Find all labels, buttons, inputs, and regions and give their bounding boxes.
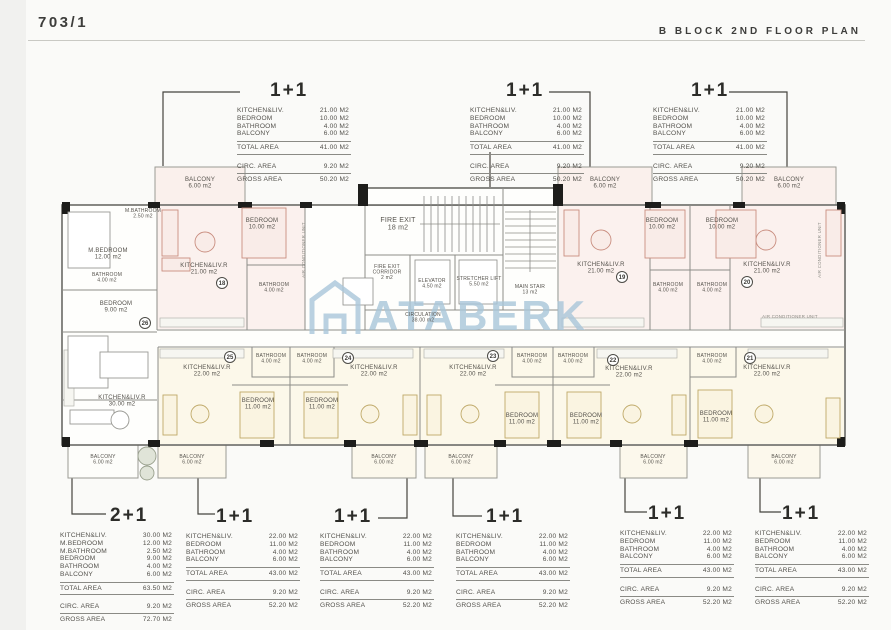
area-row-value: 41.00 M2 — [301, 144, 349, 152]
area-row-value: 6.00 M2 — [518, 556, 568, 564]
area-row: BALCONY6.00 M2 — [653, 130, 793, 138]
area-row-value: 9.00 M2 — [122, 555, 172, 563]
landscape-trees — [138, 447, 156, 480]
area-row: TOTAL AREA43.00 M2 — [755, 567, 869, 575]
total-area-row: TOTAL AREA43.00 M2 — [755, 564, 869, 578]
area-row: BATHROOM4.00 M2 — [456, 549, 596, 557]
area-row: TOTAL AREA43.00 M2 — [620, 567, 734, 575]
area-row: GROSS AREA72.70 M2 — [60, 616, 174, 624]
area-row-value: 52.20 M2 — [250, 602, 298, 610]
ac-unit-note: AIR CONDITIONER UNIT — [817, 222, 822, 278]
area-row-label: BALCONY — [653, 130, 715, 138]
area-row-value: 2.50 M2 — [122, 548, 172, 556]
area-row-value: 41.00 M2 — [534, 144, 582, 152]
area-row-label: TOTAL AREA — [620, 567, 684, 575]
room-label: BALCONY6.00 m2 — [771, 454, 797, 466]
area-row: TOTAL AREA43.00 M2 — [186, 570, 300, 578]
area-row-label: KITCHEN&LIV. — [186, 533, 248, 541]
area-row-value: 6.00 M2 — [382, 556, 432, 564]
gross-area-row: GROSS AREA52.20 M2 — [186, 600, 300, 610]
area-row: BEDROOM11.00 M2 — [456, 541, 596, 549]
area-row-label: KITCHEN&LIV. — [755, 530, 817, 538]
area-row-label: BATHROOM — [237, 123, 299, 131]
area-row-value: 11.00 M2 — [817, 538, 867, 546]
area-row: CIRC. AREA9.20 M2 — [237, 163, 351, 171]
area-row: GROSS AREA52.20 M2 — [186, 602, 300, 610]
area-row-value: 6.00 M2 — [817, 553, 867, 561]
area-row-label: BALCONY — [620, 553, 682, 561]
area-row-label: CIRC. AREA — [320, 589, 384, 597]
area-row-value: 63.50 M2 — [124, 585, 172, 593]
room-label: BALCONY6.00 m2 — [640, 454, 666, 466]
area-row-value: 21.00 M2 — [532, 107, 582, 115]
area-row: BALCONY6.00 M2 — [60, 571, 200, 579]
area-row-label: CIRC. AREA — [60, 603, 124, 611]
room-label: BEDROOM10.00 m2 — [706, 218, 738, 231]
area-row-label: TOTAL AREA — [456, 570, 520, 578]
area-row: KITCHEN&LIV.30.00 M2 — [60, 532, 200, 540]
gross-area-row: GROSS AREA72.70 M2 — [60, 614, 174, 624]
circulation-area-row: CIRC. AREA9.20 M2 — [456, 589, 570, 600]
ac-unit-note: AIR CONDITIONER UNIT — [762, 314, 818, 319]
area-row-label: M.BATHROOM — [60, 548, 122, 556]
area-row-label: KITCHEN&LIV. — [620, 530, 682, 538]
area-row-label: GROSS AREA — [755, 599, 819, 607]
area-row-value: 10.00 M2 — [715, 115, 765, 123]
watermark-text: ATABERK — [368, 292, 588, 339]
area-row-value: 9.20 M2 — [250, 589, 298, 597]
area-row-label: GROSS AREA — [456, 602, 520, 610]
total-area-row: TOTAL AREA43.00 M2 — [186, 567, 300, 581]
area-row: TOTAL AREA43.00 M2 — [456, 570, 570, 578]
room-label: BALCONY6.00 m2 — [90, 454, 116, 466]
room-label: BALCONY6.00 m2 — [185, 177, 215, 190]
area-row-value: 9.20 M2 — [684, 586, 732, 594]
area-row-label: BALCONY — [755, 553, 817, 561]
area-row: KITCHEN&LIV.21.00 M2 — [470, 107, 610, 115]
area-row-label: BEDROOM — [320, 541, 382, 549]
area-row-value: 52.20 M2 — [384, 602, 432, 610]
area-row-value: 22.00 M2 — [518, 533, 568, 541]
unit-summary-bottom-6: 1+1KITCHEN&LIV.22.00 M2BEDROOM11.00 M2BA… — [755, 503, 891, 606]
area-row-value: 9.20 M2 — [520, 589, 568, 597]
gross-area-row: GROSS AREA52.20 M2 — [320, 600, 434, 610]
area-row-value: 4.00 M2 — [299, 123, 349, 131]
area-row: KITCHEN&LIV.22.00 M2 — [456, 533, 596, 541]
area-row: M.BATHROOM2.50 M2 — [60, 548, 200, 556]
area-row-value: 4.00 M2 — [248, 549, 298, 557]
area-row: BEDROOM10.00 M2 — [470, 115, 610, 123]
area-row-label: TOTAL AREA — [470, 144, 534, 152]
area-row-value: 4.00 M2 — [518, 549, 568, 557]
area-row: KITCHEN&LIV.22.00 M2 — [186, 533, 326, 541]
area-row-label: BEDROOM — [456, 541, 518, 549]
room-label: BEDROOM11.00 m2 — [700, 411, 732, 424]
area-row-label: BATHROOM — [755, 546, 817, 554]
area-row: M.BEDROOM12.00 M2 — [60, 540, 200, 548]
area-row: BALCONY6.00 M2 — [320, 556, 460, 564]
room-label: BEDROOM11.00 m2 — [242, 398, 274, 411]
area-row: KITCHEN&LIV.21.00 M2 — [237, 107, 377, 115]
area-row-value: 52.20 M2 — [684, 599, 732, 607]
area-row-value: 21.00 M2 — [299, 107, 349, 115]
area-row-label: GROSS AREA — [186, 602, 250, 610]
area-row: BEDROOM11.00 M2 — [620, 538, 760, 546]
area-row-label: BEDROOM — [755, 538, 817, 546]
area-row: BALCONY6.00 M2 — [237, 130, 377, 138]
area-row-label: CIRC. AREA — [620, 586, 684, 594]
total-area-row: TOTAL AREA43.00 M2 — [456, 567, 570, 581]
area-row-label: BATHROOM — [320, 549, 382, 557]
area-row-label: KITCHEN&LIV. — [320, 533, 382, 541]
area-row-value: 9.20 M2 — [534, 163, 582, 171]
circulation-area-row: CIRC. AREA9.20 M2 — [620, 586, 734, 597]
area-row: GROSS AREA52.20 M2 — [620, 599, 734, 607]
total-area-row: TOTAL AREA41.00 M2 — [237, 141, 351, 155]
area-row: TOTAL AREA41.00 M2 — [237, 144, 351, 152]
area-row: KITCHEN&LIV.22.00 M2 — [320, 533, 460, 541]
area-row: BATHROOM4.00 M2 — [653, 123, 793, 131]
area-row-value: 22.00 M2 — [682, 530, 732, 538]
unit-type-label: 1+1 — [186, 506, 326, 528]
area-row-value: 22.00 M2 — [817, 530, 867, 538]
unit-number: 24 — [345, 356, 352, 362]
area-row: BEDROOM9.00 M2 — [60, 555, 200, 563]
area-row-value: 6.00 M2 — [715, 130, 765, 138]
area-row-value: 52.20 M2 — [520, 602, 568, 610]
unit-type-label: 1+1 — [653, 80, 793, 102]
area-row-value: 12.00 M2 — [122, 540, 172, 548]
unit-type-label: 1+1 — [470, 80, 610, 102]
area-row-value: 9.20 M2 — [819, 586, 867, 594]
circulation-area-row: CIRC. AREA9.20 M2 — [60, 603, 174, 614]
total-area-row: TOTAL AREA41.00 M2 — [470, 141, 584, 155]
circulation-area-row: CIRC. AREA9.20 M2 — [653, 163, 767, 174]
area-row-value: 11.00 M2 — [382, 541, 432, 549]
area-row-label: TOTAL AREA — [60, 585, 124, 593]
area-row-label: BALCONY — [456, 556, 518, 564]
area-row: BEDROOM11.00 M2 — [320, 541, 460, 549]
area-row: KITCHEN&LIV.22.00 M2 — [755, 530, 891, 538]
gross-area-row: GROSS AREA52.20 M2 — [755, 597, 869, 607]
area-row: CIRC. AREA9.20 M2 — [60, 603, 174, 611]
area-row-label: BALCONY — [186, 556, 248, 564]
room-label: BALCONY6.00 m2 — [448, 454, 474, 466]
area-row-value: 9.20 M2 — [124, 603, 172, 611]
area-row-value: 6.00 M2 — [532, 130, 582, 138]
area-row-label: KITCHEN&LIV. — [237, 107, 299, 115]
area-row-value: 52.20 M2 — [819, 599, 867, 607]
area-row: CIRC. AREA9.20 M2 — [320, 589, 434, 597]
circulation-area-row: CIRC. AREA9.20 M2 — [755, 586, 869, 597]
room-label: BALCONY6.00 m2 — [371, 454, 397, 466]
area-row: BATHROOM4.00 M2 — [60, 563, 200, 571]
area-row: TOTAL AREA43.00 M2 — [320, 570, 434, 578]
area-row-label: TOTAL AREA — [653, 144, 717, 152]
area-row-label: BALCONY — [320, 556, 382, 564]
area-row: CIRC. AREA9.20 M2 — [620, 586, 734, 594]
unit-summary-top-2: 1+1KITCHEN&LIV.21.00 M2BEDROOM10.00 M2BA… — [470, 80, 610, 183]
unit-type-label: 1+1 — [755, 503, 891, 525]
area-row: BATHROOM4.00 M2 — [186, 549, 326, 557]
area-row-label: KITCHEN&LIV. — [653, 107, 715, 115]
total-area-row: TOTAL AREA43.00 M2 — [320, 567, 434, 581]
unit-summary-bottom-5: 1+1KITCHEN&LIV.22.00 M2BEDROOM11.00 M2BA… — [620, 503, 760, 606]
unit-summary-bottom-2: 1+1KITCHEN&LIV.22.00 M2BEDROOM11.00 M2BA… — [186, 506, 326, 609]
unit-type-label: 1+1 — [620, 503, 760, 525]
gross-area-row: GROSS AREA50.20 M2 — [653, 174, 767, 184]
total-area-row: TOTAL AREA63.50 M2 — [60, 582, 174, 596]
area-row: CIRC. AREA9.20 M2 — [755, 586, 869, 594]
gross-area-row: GROSS AREA50.20 M2 — [237, 174, 351, 184]
area-row: KITCHEN&LIV.21.00 M2 — [653, 107, 793, 115]
area-row: GROSS AREA52.20 M2 — [456, 602, 570, 610]
area-row-label: GROSS AREA — [237, 176, 301, 184]
area-row-value: 4.00 M2 — [122, 563, 172, 571]
area-row-label: TOTAL AREA — [320, 570, 384, 578]
area-row: BEDROOM11.00 M2 — [186, 541, 326, 549]
area-row-label: KITCHEN&LIV. — [60, 532, 122, 540]
area-row: BATHROOM4.00 M2 — [237, 123, 377, 131]
area-row-value: 6.00 M2 — [299, 130, 349, 138]
area-row-label: GROSS AREA — [620, 599, 684, 607]
unit-number: 26 — [142, 321, 149, 327]
area-row-label: TOTAL AREA — [237, 144, 301, 152]
area-row-value: 50.20 M2 — [717, 176, 765, 184]
area-row-label: CIRC. AREA — [456, 589, 520, 597]
area-row-value: 43.00 M2 — [819, 567, 867, 575]
unit-summary-top-3: 1+1KITCHEN&LIV.21.00 M2BEDROOM10.00 M2BA… — [653, 80, 793, 183]
area-row-label: BATHROOM — [653, 123, 715, 131]
area-row: KITCHEN&LIV.22.00 M2 — [620, 530, 760, 538]
area-row-value: 4.00 M2 — [817, 546, 867, 554]
area-row-label: TOTAL AREA — [186, 570, 250, 578]
gross-area-row: GROSS AREA52.20 M2 — [456, 600, 570, 610]
circulation-area-row: CIRC. AREA9.20 M2 — [237, 163, 351, 174]
area-row: BATHROOM4.00 M2 — [620, 546, 760, 554]
area-row: TOTAL AREA41.00 M2 — [653, 144, 767, 152]
area-row: BATHROOM4.00 M2 — [755, 546, 891, 554]
unit-number: 23 — [490, 354, 497, 360]
area-row-value: 50.20 M2 — [534, 176, 582, 184]
area-row: BALCONY6.00 M2 — [456, 556, 596, 564]
area-row: GROSS AREA50.20 M2 — [653, 176, 767, 184]
area-row-label: BATHROOM — [620, 546, 682, 554]
area-row: BALCONY6.00 M2 — [755, 553, 891, 561]
area-row-value: 10.00 M2 — [532, 115, 582, 123]
area-row-label: BEDROOM — [653, 115, 715, 123]
area-row-label: CIRC. AREA — [755, 586, 819, 594]
total-area-row: TOTAL AREA43.00 M2 — [620, 564, 734, 578]
room-label: BEDROOM11.00 m2 — [570, 413, 602, 426]
area-row-value: 41.00 M2 — [717, 144, 765, 152]
area-row: CIRC. AREA9.20 M2 — [456, 589, 570, 597]
room-label: BEDROOM11.00 m2 — [306, 398, 338, 411]
area-row-label: BEDROOM — [186, 541, 248, 549]
area-row-label: CIRC. AREA — [470, 163, 534, 171]
area-row: GROSS AREA50.20 M2 — [237, 176, 351, 184]
area-row-value: 22.00 M2 — [382, 533, 432, 541]
area-row-label: GROSS AREA — [320, 602, 384, 610]
area-row-value: 9.20 M2 — [301, 163, 349, 171]
area-row-value: 4.00 M2 — [715, 123, 765, 131]
unit-number: 19 — [619, 275, 626, 281]
area-row-value: 4.00 M2 — [532, 123, 582, 131]
area-row: BALCONY6.00 M2 — [186, 556, 326, 564]
unit-type-label: 1+1 — [320, 506, 460, 528]
area-row-label: BEDROOM — [237, 115, 299, 123]
area-row-value: 50.20 M2 — [301, 176, 349, 184]
area-row-label: GROSS AREA — [653, 176, 717, 184]
area-row: BATHROOM4.00 M2 — [320, 549, 460, 557]
total-area-row: TOTAL AREA41.00 M2 — [653, 141, 767, 155]
area-row-value: 4.00 M2 — [382, 549, 432, 557]
area-row-value: 6.00 M2 — [682, 553, 732, 561]
gross-area-row: GROSS AREA52.20 M2 — [620, 597, 734, 607]
area-row-value: 11.00 M2 — [518, 541, 568, 549]
area-row-value: 4.00 M2 — [682, 546, 732, 554]
area-row-label: GROSS AREA — [60, 616, 124, 624]
area-row-label: TOTAL AREA — [755, 567, 819, 575]
unit-type-label: 1+1 — [456, 506, 596, 528]
unit-number: 18 — [219, 281, 226, 287]
area-row-value: 11.00 M2 — [248, 541, 298, 549]
area-row: BEDROOM10.00 M2 — [653, 115, 793, 123]
unit-number: 25 — [227, 355, 234, 361]
area-row-label: BEDROOM — [470, 115, 532, 123]
area-row: TOTAL AREA41.00 M2 — [470, 144, 584, 152]
room-label: BALCONY6.00 m2 — [179, 454, 205, 466]
area-row-label: BATHROOM — [456, 549, 518, 557]
area-row-label: M.BEDROOM — [60, 540, 122, 548]
unit-summary-bottom-1: 2+1KITCHEN&LIV.30.00 M2M.BEDROOM12.00 M2… — [60, 505, 200, 624]
area-row: BEDROOM10.00 M2 — [237, 115, 377, 123]
area-row-value: 9.20 M2 — [717, 163, 765, 171]
area-row-label: BALCONY — [237, 130, 299, 138]
area-row-label: BATHROOM — [470, 123, 532, 131]
area-row-value: 22.00 M2 — [248, 533, 298, 541]
area-row-value: 21.00 M2 — [715, 107, 765, 115]
area-row: BEDROOM11.00 M2 — [755, 538, 891, 546]
drawing-sheet: 703/1 B BLOCK 2ND FLOOR PLAN — [0, 0, 891, 630]
area-row-value: 72.70 M2 — [124, 616, 172, 624]
area-row-label: BATHROOM — [60, 563, 122, 571]
gross-area-row: GROSS AREA50.20 M2 — [470, 174, 584, 184]
area-row: CIRC. AREA9.20 M2 — [653, 163, 767, 171]
circulation-area-row: CIRC. AREA9.20 M2 — [320, 589, 434, 600]
unit-summary-bottom-3: 1+1KITCHEN&LIV.22.00 M2BEDROOM11.00 M2BA… — [320, 506, 460, 609]
area-row: CIRC. AREA9.20 M2 — [470, 163, 584, 171]
area-row-label: CIRC. AREA — [186, 589, 250, 597]
unit-summary-top-1: 1+1KITCHEN&LIV.21.00 M2BEDROOM10.00 M2BA… — [237, 80, 377, 183]
area-row-value: 43.00 M2 — [250, 570, 298, 578]
room-label: BEDROOM9.00 m2 — [100, 301, 132, 314]
area-row-label: CIRC. AREA — [237, 163, 301, 171]
circulation-area-row: CIRC. AREA9.20 M2 — [186, 589, 300, 600]
area-row-label: BEDROOM — [60, 555, 122, 563]
area-row-label: KITCHEN&LIV. — [456, 533, 518, 541]
area-row-value: 43.00 M2 — [384, 570, 432, 578]
area-row: TOTAL AREA63.50 M2 — [60, 585, 174, 593]
unit-type-label: 2+1 — [60, 505, 200, 527]
area-row: BATHROOM4.00 M2 — [470, 123, 610, 131]
area-row-label: BATHROOM — [186, 549, 248, 557]
area-row-label: BALCONY — [470, 130, 532, 138]
area-row-value: 9.20 M2 — [384, 589, 432, 597]
unit-number: 22 — [610, 358, 617, 364]
area-row-value: 43.00 M2 — [684, 567, 732, 575]
area-row-label: CIRC. AREA — [653, 163, 717, 171]
area-row-value: 30.00 M2 — [122, 532, 172, 540]
room-label: BEDROOM10.00 m2 — [646, 218, 678, 231]
unit-number: 21 — [747, 356, 754, 362]
area-row-value: 6.00 M2 — [122, 571, 172, 579]
unit-summary-bottom-4: 1+1KITCHEN&LIV.22.00 M2BEDROOM11.00 M2BA… — [456, 506, 596, 609]
unit-type-label: 1+1 — [237, 80, 377, 102]
area-row-label: BEDROOM — [620, 538, 682, 546]
ac-unit-note: AIR CONDITIONER UNIT — [301, 222, 306, 278]
area-row-label: BALCONY — [60, 571, 122, 579]
area-row-value: 6.00 M2 — [248, 556, 298, 564]
area-row: BALCONY6.00 M2 — [470, 130, 610, 138]
room-label: BEDROOM11.00 m2 — [506, 413, 538, 426]
area-row: GROSS AREA52.20 M2 — [755, 599, 869, 607]
tree-icon — [138, 447, 156, 465]
area-row-label: GROSS AREA — [470, 176, 534, 184]
tree-icon — [140, 466, 154, 480]
room-label: BEDROOM10.00 m2 — [246, 218, 278, 231]
area-row: GROSS AREA50.20 M2 — [470, 176, 584, 184]
area-row-value: 10.00 M2 — [299, 115, 349, 123]
area-row-value: 43.00 M2 — [520, 570, 568, 578]
unit-number: 20 — [744, 280, 751, 286]
circulation-area-row: CIRC. AREA9.20 M2 — [470, 163, 584, 174]
area-row: GROSS AREA52.20 M2 — [320, 602, 434, 610]
area-row: BALCONY6.00 M2 — [620, 553, 760, 561]
area-row-value: 11.00 M2 — [682, 538, 732, 546]
area-row-label: KITCHEN&LIV. — [470, 107, 532, 115]
area-row: CIRC. AREA9.20 M2 — [186, 589, 300, 597]
